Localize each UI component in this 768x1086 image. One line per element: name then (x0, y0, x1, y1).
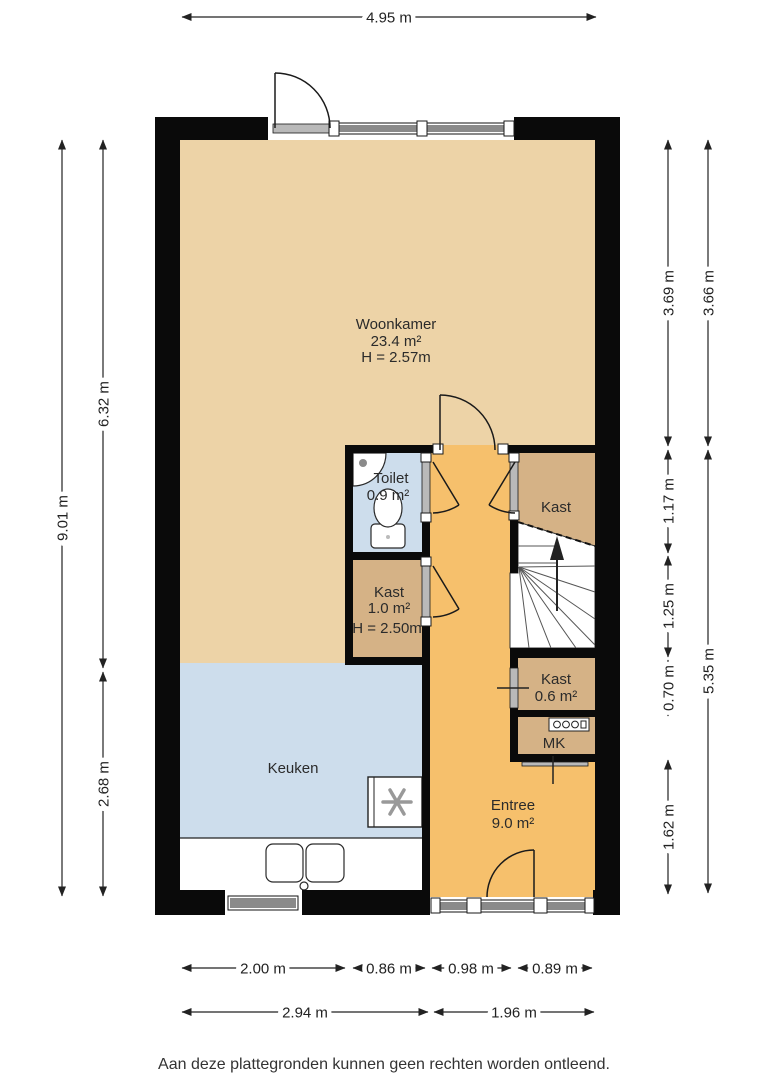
door-jamb (421, 557, 431, 566)
door-jamb (433, 444, 443, 454)
dim-right-inner-3: 1.25 m (660, 583, 677, 629)
kast-mid-ceiling-height: H = 2.50m (352, 620, 422, 637)
kast-door-leaf-closed (422, 565, 430, 618)
dim-bottom2-2: 1.96 m (491, 1004, 537, 1021)
wall-toilet-kast-divider (345, 552, 430, 560)
door-jamb (509, 453, 519, 462)
wall-kast-south (345, 657, 430, 665)
sink-faucet (300, 882, 308, 890)
window-post (534, 898, 547, 913)
door-jamb (421, 617, 431, 626)
window-post (417, 121, 427, 136)
entree-sidelight-glass (440, 902, 468, 910)
toilet-flush-button (386, 535, 390, 539)
toilet-door-leaf-closed (422, 461, 430, 514)
disclaimer-text: Aan deze plattegronden kunnen geen recht… (158, 1056, 610, 1073)
dim-right-outer-2: 5.35 m (700, 648, 717, 694)
dim-bottom1-3: 0.98 m (448, 960, 494, 977)
wall-mk-west (510, 717, 518, 762)
hall-door-floor (443, 445, 498, 453)
kast-top-label: Kast (541, 499, 572, 516)
window-post (431, 898, 440, 913)
front-door-sill (273, 124, 330, 133)
mk-door-leaf (522, 762, 588, 766)
dim-right-outer-1: 3.66 m (700, 270, 717, 316)
dim-right-inner-2: 1.17 m (660, 478, 677, 524)
basin-faucet (359, 459, 367, 467)
dim-bottom1-2: 0.86 m (366, 960, 412, 977)
outer-wall-left (155, 117, 180, 915)
toilet-area: 0.9 m² (367, 487, 410, 504)
floorplan-page: Woonkamer 23.4 m² H = 2.57m Toilet 0.9 m… (0, 0, 768, 1086)
kast-small-label: Kast (541, 671, 572, 688)
dim-left-outer: 9.01 m (54, 495, 71, 541)
entree-label: Entree (491, 797, 535, 814)
mk-label: MK (543, 735, 566, 752)
dim-right-inner-1: 3.69 m (660, 270, 677, 316)
dim-left-inner-top: 6.32 m (95, 381, 112, 427)
outer-wall-bottom-right (593, 890, 620, 915)
kast-mid-area: 1.0 m² (368, 600, 411, 617)
floorplan-canvas: Woonkamer 23.4 m² H = 2.57m Toilet 0.9 m… (0, 0, 768, 1086)
outer-wall-right (595, 117, 620, 915)
woonkamer-floor (180, 140, 595, 453)
toilet-label: Toilet (373, 470, 409, 487)
door-jamb (421, 513, 431, 522)
entree-door-threshold (481, 902, 534, 910)
door-jamb (498, 444, 508, 454)
wall-kast-mk-divider (510, 710, 595, 717)
woonkamer-area: 23.4 m² (371, 333, 422, 350)
woonkamer-floor-lower (180, 445, 353, 665)
kast-mid-label: Kast (374, 584, 405, 601)
dim-bottom2-1: 2.94 m (282, 1004, 328, 1021)
top-wall-openings (268, 73, 514, 140)
window-post (504, 121, 514, 136)
sink-basin-right (306, 844, 344, 882)
dim-bottom1-1: 2.00 m (240, 960, 286, 977)
dim-bottom1-4: 0.89 m (532, 960, 578, 977)
woonkamer-label: Woonkamer (356, 316, 437, 333)
wall-mk-south (518, 754, 595, 762)
window-post (467, 898, 481, 913)
dim-right-inner-5: 1.62 m (660, 804, 677, 850)
entree-area: 9.0 m² (492, 815, 535, 832)
dim-top: 4.95 m (366, 9, 412, 26)
woonkamer-ceiling-height: H = 2.57m (361, 349, 431, 366)
kitchen-window-glass (230, 898, 296, 908)
kast-small-area: 0.6 m² (535, 688, 578, 705)
meter-panel-icon (549, 718, 589, 731)
sink-basin-left (266, 844, 303, 882)
keuken-label: Keuken (268, 760, 319, 777)
dim-left-inner-bottom: 2.68 m (95, 761, 112, 807)
window-post (585, 898, 594, 913)
dim-right-inner-4: 0.70 m (660, 665, 677, 711)
entree-sidelight-glass (547, 902, 586, 910)
door-jamb (421, 453, 431, 462)
wall-stairs-south (510, 648, 595, 658)
